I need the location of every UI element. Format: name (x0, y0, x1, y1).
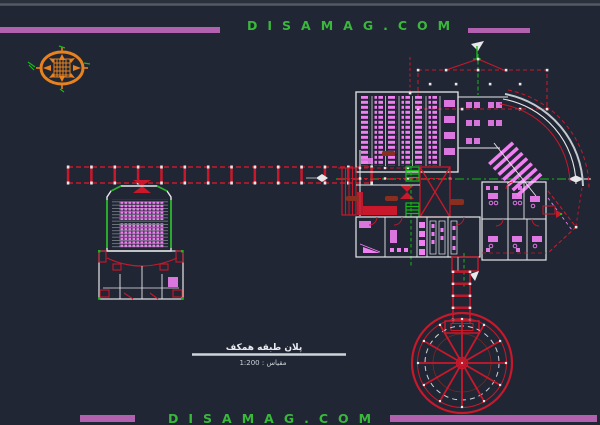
header-frame: DISAMAG.COM (0, 0, 600, 59)
round-pavilion (412, 313, 512, 413)
bottom-left-purple-bar (80, 415, 135, 422)
watermark-bottom: DISAMAG.COM (168, 411, 381, 425)
compass-rose-icon (28, 46, 90, 92)
cad-drawing-canvas: DISAMAG.COM (0, 0, 600, 425)
office-rooms-east (482, 182, 582, 260)
study-room (458, 97, 508, 148)
lobby-furniture (168, 277, 178, 287)
main-building (338, 54, 589, 289)
elevator-shafts (406, 167, 419, 217)
hall-shelves (444, 100, 455, 155)
office-rooms-south (356, 217, 480, 257)
top-left-purple-bar (0, 27, 220, 33)
plan-title: پلان طبقه همکف (226, 343, 302, 353)
door-swings (369, 217, 464, 225)
bottom-right-purple-bar (390, 415, 597, 422)
auditorium-lobby (98, 250, 183, 299)
top-right-purple-bar (468, 28, 530, 33)
floor-plan-drawing: DISAMAG.COM (0, 0, 600, 425)
plan-scale: مقیاس : 1:200 (239, 359, 286, 367)
title-block: پلان طبقه همکف مقیاس : 1:200 (192, 343, 346, 367)
top-edge-strip (0, 0, 600, 3)
watermark-top: DISAMAG.COM (247, 18, 460, 33)
link-flag-icon (470, 271, 479, 281)
footer-frame: DISAMAG.COM (80, 411, 597, 425)
auditorium-building (98, 186, 183, 299)
curved-wall (500, 90, 589, 188)
red-wall-fill (363, 206, 397, 215)
south-furniture (359, 221, 456, 255)
shaft-x-brace (420, 167, 450, 217)
corridor-bridge (67, 167, 373, 193)
seat-block-upper (119, 201, 164, 220)
marker-flag-icon (316, 174, 328, 182)
seat-block-lower (119, 223, 164, 248)
